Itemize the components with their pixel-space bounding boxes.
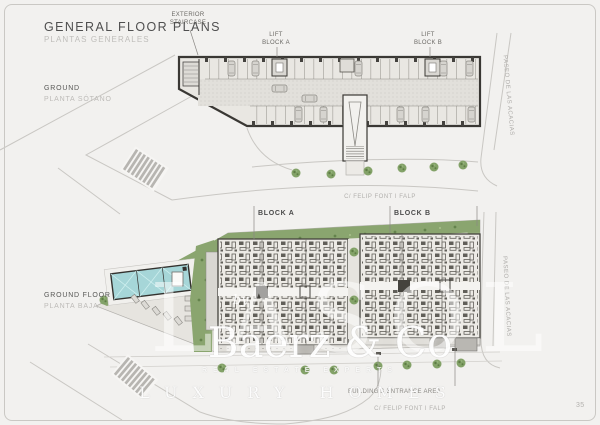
ground-floor-plan	[96, 220, 480, 375]
block-a-label: BLOCK A	[258, 209, 295, 218]
block-b-building	[360, 234, 480, 345]
basement-level-label: GROUND	[44, 84, 80, 93]
pool-house	[172, 272, 183, 286]
zebra-crossing-lower	[111, 354, 158, 400]
block-a-building	[206, 239, 348, 352]
tree	[350, 296, 359, 305]
page-number: 35	[576, 401, 584, 410]
basement-level-label-es: PLANTA SÓTANO	[44, 95, 112, 104]
block-b-label: BLOCK B	[394, 209, 431, 218]
page-subtitle: PLANTAS GENERALES	[44, 35, 150, 45]
street-name-felip-lower: C/ FELIP FONT I FALP	[355, 406, 465, 414]
ground-floor-level-label-es: PLANTA BAJA	[44, 302, 99, 311]
lift-block-a-label: LIFT BLOCK A	[246, 32, 306, 48]
street-trees-upper	[292, 161, 468, 179]
site-plan-graphics	[0, 0, 600, 425]
brochure-page: GENERAL FLOOR PLANS PLANTAS GENERALES EX…	[0, 0, 600, 425]
street-name-felip-upper: C/ FELIP FONT I FALP	[330, 194, 430, 202]
drive-aisle	[198, 79, 478, 106]
ramp	[343, 95, 367, 175]
exterior-staircase-label: EXTERIOR STAIRCASE	[158, 12, 218, 28]
street-trees-lower	[218, 359, 466, 375]
lift-core-b	[425, 59, 440, 76]
tree	[350, 248, 359, 257]
ground-floor-level-label: GROUND FLOOR	[44, 291, 111, 300]
entrance-area-label: BUILDING'S ENTRANCE AREA	[348, 389, 441, 397]
lift-core-a	[272, 59, 287, 76]
basement-plan	[179, 57, 480, 179]
lift-block-b-label: LIFT BLOCK B	[398, 32, 458, 48]
zebra-crossing-upper	[120, 146, 169, 191]
